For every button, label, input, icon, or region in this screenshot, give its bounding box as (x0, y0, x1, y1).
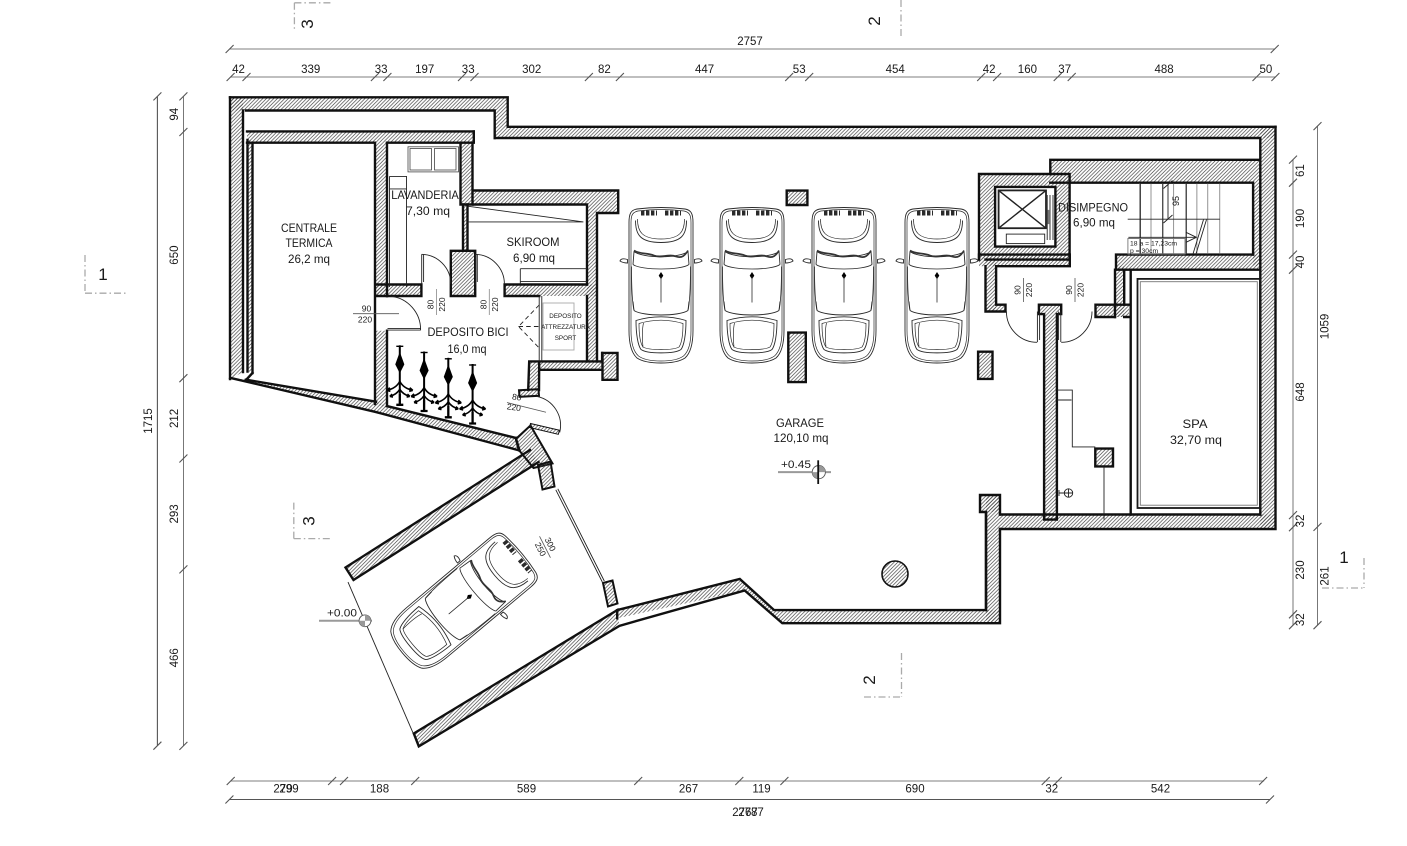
svg-text:690: 690 (905, 784, 924, 796)
svg-text:220: 220 (1024, 283, 1034, 297)
svg-text:37: 37 (1058, 64, 1071, 76)
svg-text:447: 447 (695, 64, 714, 76)
svg-text:33: 33 (462, 64, 475, 76)
svg-text:42: 42 (232, 64, 245, 76)
svg-text:+0.00: +0.00 (327, 608, 357, 620)
svg-text:32: 32 (1295, 515, 1307, 528)
svg-text:293: 293 (169, 504, 181, 523)
svg-text:1: 1 (98, 265, 107, 284)
svg-text:339: 339 (301, 64, 320, 76)
svg-text:DISIMPEGNO: DISIMPEGNO (1058, 203, 1128, 215)
svg-text:220: 220 (358, 315, 372, 325)
svg-text:261: 261 (1320, 566, 1332, 585)
svg-text:SPA: SPA (1183, 417, 1208, 431)
svg-text:SPORT: SPORT (555, 335, 577, 342)
svg-text:40: 40 (1295, 256, 1307, 269)
svg-text:220: 220 (490, 297, 500, 311)
svg-text:589: 589 (517, 784, 536, 796)
svg-text:50: 50 (1260, 64, 1273, 76)
svg-text:p = 30cm: p = 30cm (1130, 248, 1158, 255)
svg-text:CENTRALE: CENTRALE (281, 221, 337, 235)
svg-text:95: 95 (1171, 196, 1181, 206)
svg-text:42: 42 (983, 64, 996, 76)
svg-text:80: 80 (426, 300, 436, 310)
svg-text:90: 90 (1013, 285, 1023, 295)
svg-text:DEPOSITO BICI: DEPOSITO BICI (428, 325, 509, 339)
svg-text:DEPOSITO: DEPOSITO (549, 313, 582, 320)
svg-text:6,90 mq: 6,90 mq (1073, 218, 1115, 230)
svg-text:190: 190 (1295, 209, 1307, 228)
svg-text:32,70 mq: 32,70 mq (1170, 433, 1222, 447)
svg-text:3: 3 (298, 19, 317, 28)
svg-text:488: 488 (1155, 64, 1174, 76)
svg-text:18 a = 17,23cm: 18 a = 17,23cm (1130, 241, 1177, 248)
svg-text:188: 188 (370, 784, 389, 796)
svg-text:220: 220 (437, 297, 447, 311)
svg-text:267: 267 (679, 784, 698, 796)
svg-text:3: 3 (300, 516, 319, 525)
svg-text:6,90 mq: 6,90 mq (513, 251, 555, 265)
svg-text:LAVANDERIA: LAVANDERIA (391, 188, 459, 202)
svg-text:160: 160 (1018, 64, 1037, 76)
svg-text:220: 220 (1076, 283, 1086, 297)
svg-text:2: 2 (865, 16, 884, 25)
svg-text:1: 1 (1339, 548, 1348, 567)
svg-text:119: 119 (752, 784, 770, 796)
svg-text:1715: 1715 (143, 408, 155, 434)
svg-text:90: 90 (1064, 285, 1074, 295)
svg-text:2787: 2787 (738, 807, 764, 819)
svg-text:61: 61 (1295, 164, 1307, 177)
svg-text:197: 197 (415, 64, 434, 76)
svg-text:302: 302 (522, 64, 541, 76)
svg-text:212: 212 (169, 409, 181, 428)
svg-text:7,30 mq: 7,30 mq (406, 204, 450, 218)
svg-text:80: 80 (511, 391, 522, 402)
svg-text:1059: 1059 (1320, 314, 1332, 340)
svg-text:650: 650 (169, 246, 181, 265)
svg-text:53: 53 (793, 64, 806, 76)
svg-text:82: 82 (598, 64, 611, 76)
svg-text:2: 2 (860, 675, 879, 684)
svg-text:SKIROOM: SKIROOM (507, 235, 560, 249)
svg-text:TERMICA: TERMICA (286, 236, 333, 250)
svg-text:454: 454 (886, 64, 906, 76)
svg-text:94: 94 (169, 107, 181, 120)
svg-text:+0.45: +0.45 (781, 459, 811, 471)
svg-text:33: 33 (375, 64, 388, 76)
svg-text:80: 80 (478, 300, 488, 310)
svg-text:26,2 mq: 26,2 mq (288, 252, 330, 266)
svg-text:16,0 mq: 16,0 mq (448, 342, 487, 356)
svg-text:466: 466 (169, 648, 181, 667)
svg-text:ATTREZZATURA: ATTREZZATURA (541, 324, 591, 331)
svg-text:648: 648 (1295, 382, 1307, 401)
svg-text:299: 299 (279, 784, 298, 796)
svg-text:32: 32 (1295, 613, 1307, 626)
svg-text:GARAGE: GARAGE (776, 416, 824, 430)
svg-text:542: 542 (1151, 784, 1170, 796)
svg-text:2757: 2757 (737, 36, 763, 48)
svg-text:230: 230 (1295, 560, 1307, 579)
svg-text:90: 90 (362, 304, 372, 314)
svg-text:120,10 mq: 120,10 mq (774, 431, 829, 445)
svg-text:32: 32 (1045, 784, 1058, 796)
